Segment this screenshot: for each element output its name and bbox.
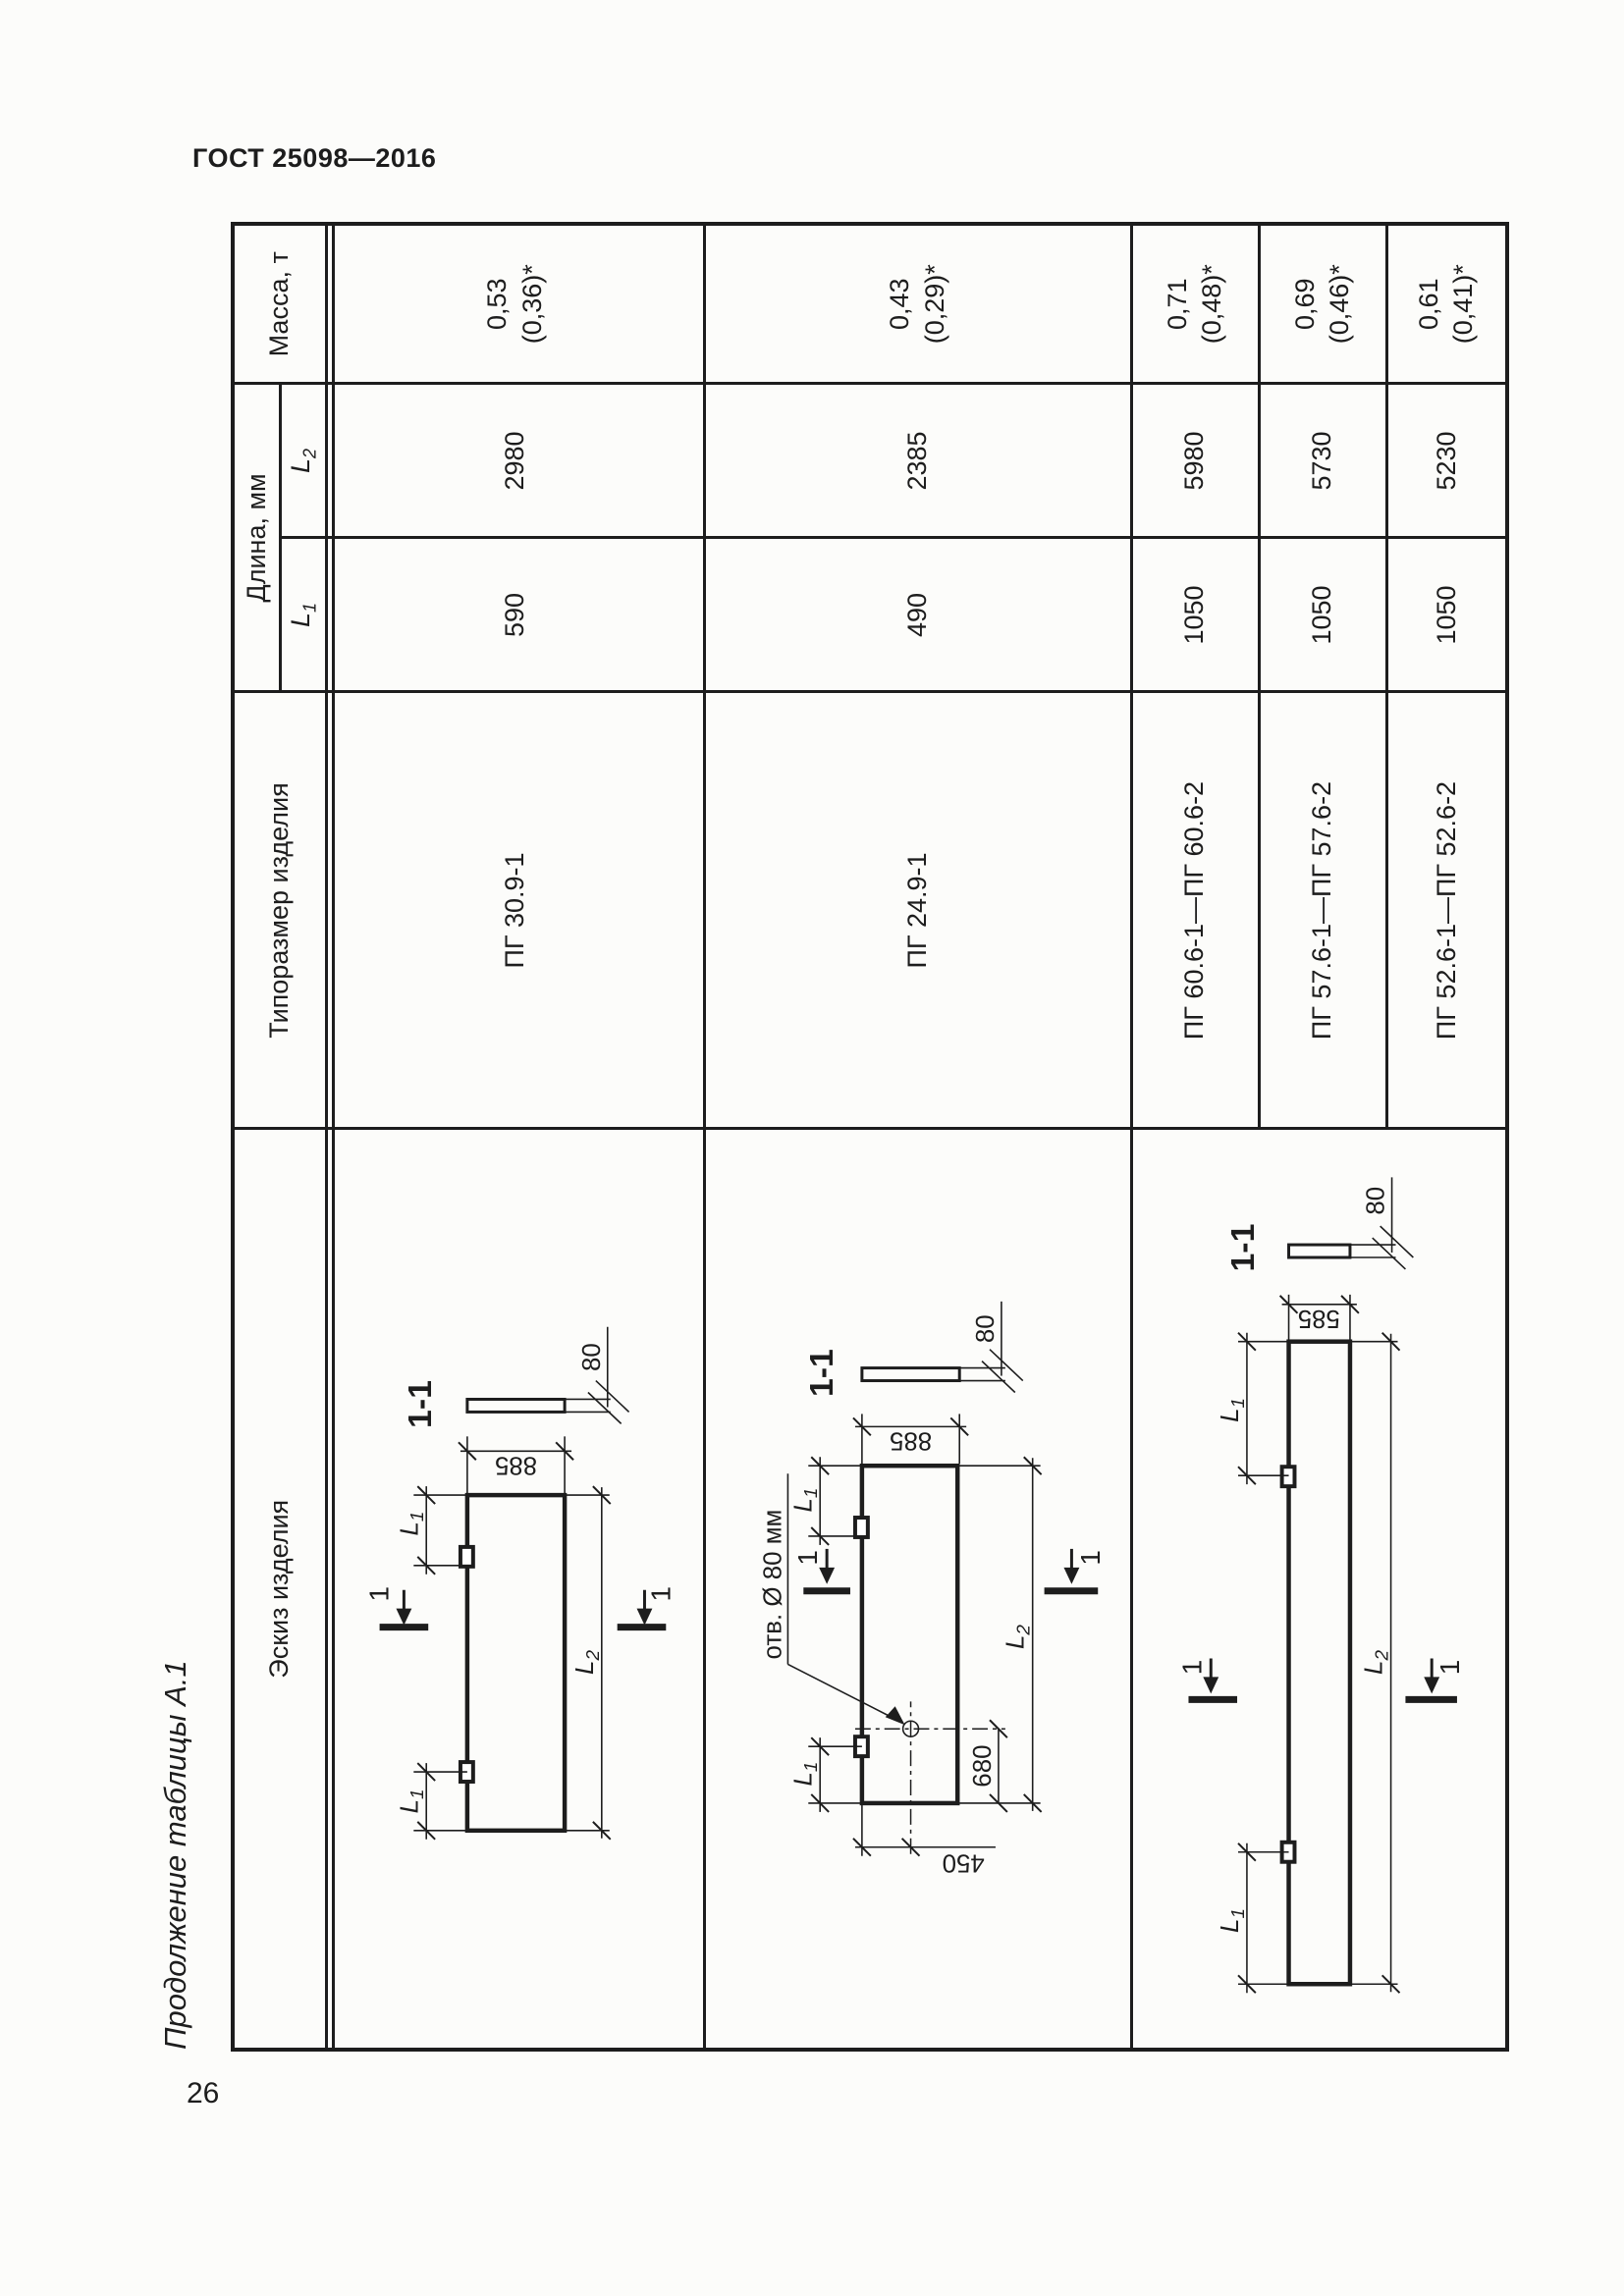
- cut-mark-label: 1: [1176, 1660, 1207, 1676]
- lintel-plan-outline: [1288, 1342, 1349, 1985]
- sketch-cell-1: L1 L1 L2 1: [326, 1129, 704, 2050]
- document-page: ГОСТ 25098—2016 Продолжение таблицы А.1 …: [0, 0, 1624, 2296]
- mass-cell: 0,71(0,48)*: [1131, 224, 1259, 384]
- standard-number: ГОСТ 25098—2016: [192, 143, 436, 174]
- l1-cell: 1050: [1131, 538, 1259, 692]
- dim-l1-label: L1: [1217, 1908, 1248, 1933]
- l1-cell: 1050: [1386, 538, 1507, 692]
- type-cell: ПГ 60.6-1—ПГ 60.6-2: [1131, 692, 1259, 1129]
- l2-cell: 5730: [1259, 384, 1386, 538]
- lifting-loop-icon: [854, 1518, 867, 1537]
- mass-cell: 0,43(0,29)*: [704, 224, 1131, 384]
- header-l1: L1: [280, 538, 326, 692]
- cut-mark-label: 1: [1075, 1550, 1106, 1566]
- dim-hole-680: 680: [969, 1744, 997, 1787]
- dim-hole-450: 450: [942, 1849, 984, 1877]
- lintel-sketch-1: L1 L1 L2 1: [328, 1131, 703, 2049]
- dim-thickness-80: 80: [1362, 1187, 1389, 1215]
- sketch-cell-2: L1 L1 L2: [704, 1129, 1131, 2050]
- l1-cell: 590: [326, 538, 704, 692]
- header-double-rule: [332, 226, 335, 2052]
- header-sketch: Эскиз изделия: [233, 1129, 326, 2050]
- section-plate: [861, 1368, 958, 1381]
- section-title: 1-1: [1223, 1224, 1261, 1272]
- l2-cell: 2385: [704, 384, 1131, 538]
- dim-width-585: 585: [1297, 1305, 1339, 1332]
- header-mass: Масса, т: [233, 224, 326, 384]
- l2-cell: 2980: [326, 384, 704, 538]
- dim-l1-label: L1: [396, 1512, 428, 1536]
- dim-width-885: 885: [494, 1451, 536, 1478]
- rotated-table-block: Продолжение таблицы А.1 Эскиз изделия Ти…: [231, 226, 1505, 2052]
- cut-mark-label: 1: [792, 1550, 823, 1566]
- mass-cell: 0,53(0,36)*: [326, 224, 704, 384]
- lintel-sketch-3: L1 L1 L2 1: [1133, 1131, 1506, 2049]
- lifting-loop-icon: [1281, 1467, 1294, 1486]
- dim-l1-label: L1: [1217, 1398, 1248, 1422]
- header-type: Типоразмер изделия: [233, 692, 326, 1129]
- dim-l1-label: L1: [396, 1789, 428, 1813]
- type-cell: ПГ 52.6-1—ПГ 52.6-2: [1386, 692, 1507, 1129]
- section-title: 1-1: [803, 1349, 840, 1397]
- l2-cell: 5980: [1131, 384, 1259, 538]
- table-caption: Продолжение таблицы А.1: [158, 1660, 193, 2050]
- section-plate: [1288, 1245, 1349, 1257]
- cut-mark-label: 1: [645, 1586, 676, 1602]
- dim-l2-label: L2: [1360, 1649, 1391, 1674]
- dim-width-885: 885: [890, 1426, 932, 1454]
- mass-cell: 0,69(0,46)*: [1259, 224, 1386, 384]
- lintel-plan-outline: [861, 1466, 956, 1803]
- lintel-plan-outline: [466, 1495, 564, 1831]
- sketch-cell-3: L1 L1 L2 1: [1131, 1129, 1507, 2050]
- l1-cell: 490: [704, 538, 1131, 692]
- header-l2: L2: [280, 384, 326, 538]
- dim-thickness-80: 80: [577, 1343, 605, 1371]
- cut-mark-label: 1: [1435, 1660, 1465, 1676]
- lintel-table: Эскиз изделия Типоразмер изделия Длина, …: [231, 222, 1509, 2052]
- type-cell: ПГ 24.9-1: [704, 692, 1131, 1129]
- hole-note: отв. Ø 80 мм: [759, 1510, 786, 1660]
- dim-l1-label: L1: [789, 1762, 822, 1787]
- section-plate: [466, 1399, 564, 1412]
- l2-cell: 5230: [1386, 384, 1507, 538]
- cut-mark-label: 1: [363, 1586, 394, 1602]
- l1-cell: 1050: [1259, 538, 1386, 692]
- dim-thickness-80: 80: [972, 1314, 1000, 1343]
- mass-cell: 0,61(0,41)*: [1386, 224, 1507, 384]
- type-cell: ПГ 57.6-1—ПГ 57.6-2: [1259, 692, 1386, 1129]
- dim-l2-label: L2: [570, 1650, 603, 1675]
- lintel-sketch-2: L1 L1 L2: [706, 1131, 1130, 2049]
- dim-l1-label: L1: [789, 1488, 822, 1513]
- lifting-loop-icon: [460, 1547, 472, 1567]
- section-title: 1-1: [402, 1380, 439, 1428]
- dim-l2-label: L2: [1001, 1625, 1034, 1649]
- type-cell: ПГ 30.9-1: [326, 692, 704, 1129]
- header-length: Длина, мм: [233, 384, 280, 692]
- page-number: 26: [187, 2077, 219, 2110]
